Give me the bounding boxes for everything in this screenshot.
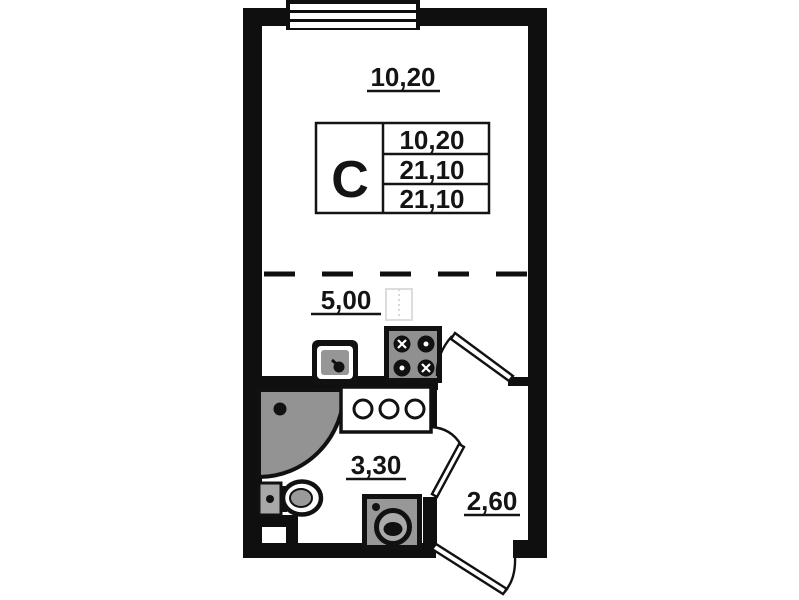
stove-burner-3-dot bbox=[400, 366, 405, 371]
wall-right bbox=[528, 8, 547, 556]
wall-bottom-right-stub bbox=[513, 540, 547, 558]
window-icon bbox=[286, 0, 420, 30]
window-pane-3 bbox=[290, 22, 416, 28]
entrance-door-swing-arc bbox=[505, 556, 515, 591]
kitchen-area-label: 5,00 bbox=[321, 285, 372, 315]
window-pane-2 bbox=[290, 13, 416, 19]
stove-burner-2-dot bbox=[424, 342, 429, 347]
hallway-area-label: 2,60 bbox=[467, 486, 518, 516]
vanity-hole-1 bbox=[354, 400, 372, 418]
entrance-door bbox=[432, 544, 515, 594]
living-room-area-label: 10,20 bbox=[370, 62, 435, 92]
washer-knob bbox=[372, 503, 380, 511]
vanity-counter-icon bbox=[341, 387, 431, 432]
bathroom-area-label: 3,30 bbox=[351, 450, 402, 480]
bathroom-door-leaf bbox=[432, 444, 464, 497]
kitchen-sink-icon bbox=[312, 340, 358, 385]
faint-artifact bbox=[386, 289, 412, 320]
table-value-3: 21,10 bbox=[399, 184, 464, 214]
floor-plan-page: C 10,20 21,10 21,10 10,20 5,00 3,30 2,60 bbox=[0, 0, 799, 600]
duct-wall-vertical bbox=[286, 515, 298, 543]
floor-plan: C 10,20 21,10 21,10 10,20 5,00 3,30 2,60 bbox=[0, 0, 799, 600]
unit-type-letter: C bbox=[331, 151, 369, 209]
window-pane-1 bbox=[290, 4, 416, 10]
washing-machine-icon bbox=[362, 494, 422, 550]
sink-drain bbox=[334, 362, 345, 373]
table-value-2: 21,10 bbox=[399, 155, 464, 185]
wall-hallway-lower bbox=[423, 497, 437, 544]
washer-drum-inner bbox=[384, 522, 403, 536]
info-table: C 10,20 21,10 21,10 bbox=[316, 123, 489, 214]
shower-tray bbox=[259, 390, 344, 477]
corner-shower-icon bbox=[259, 390, 344, 477]
kitchen-door bbox=[437, 333, 513, 381]
toilet-tank-button bbox=[266, 495, 274, 503]
entrance-door-leaf bbox=[432, 544, 507, 594]
shower-drain bbox=[274, 403, 287, 416]
vanity-hole-2 bbox=[380, 400, 398, 418]
bathroom-door-swing-arc bbox=[431, 427, 461, 445]
stove-icon bbox=[384, 326, 442, 383]
toilet-icon bbox=[259, 482, 321, 516]
bathroom-door bbox=[431, 427, 464, 497]
table-value-1: 10,20 bbox=[399, 125, 464, 155]
vanity-hole-3 bbox=[406, 400, 424, 418]
kitchen-door-leaf bbox=[451, 333, 513, 381]
toilet-bowl-inner bbox=[290, 489, 312, 507]
